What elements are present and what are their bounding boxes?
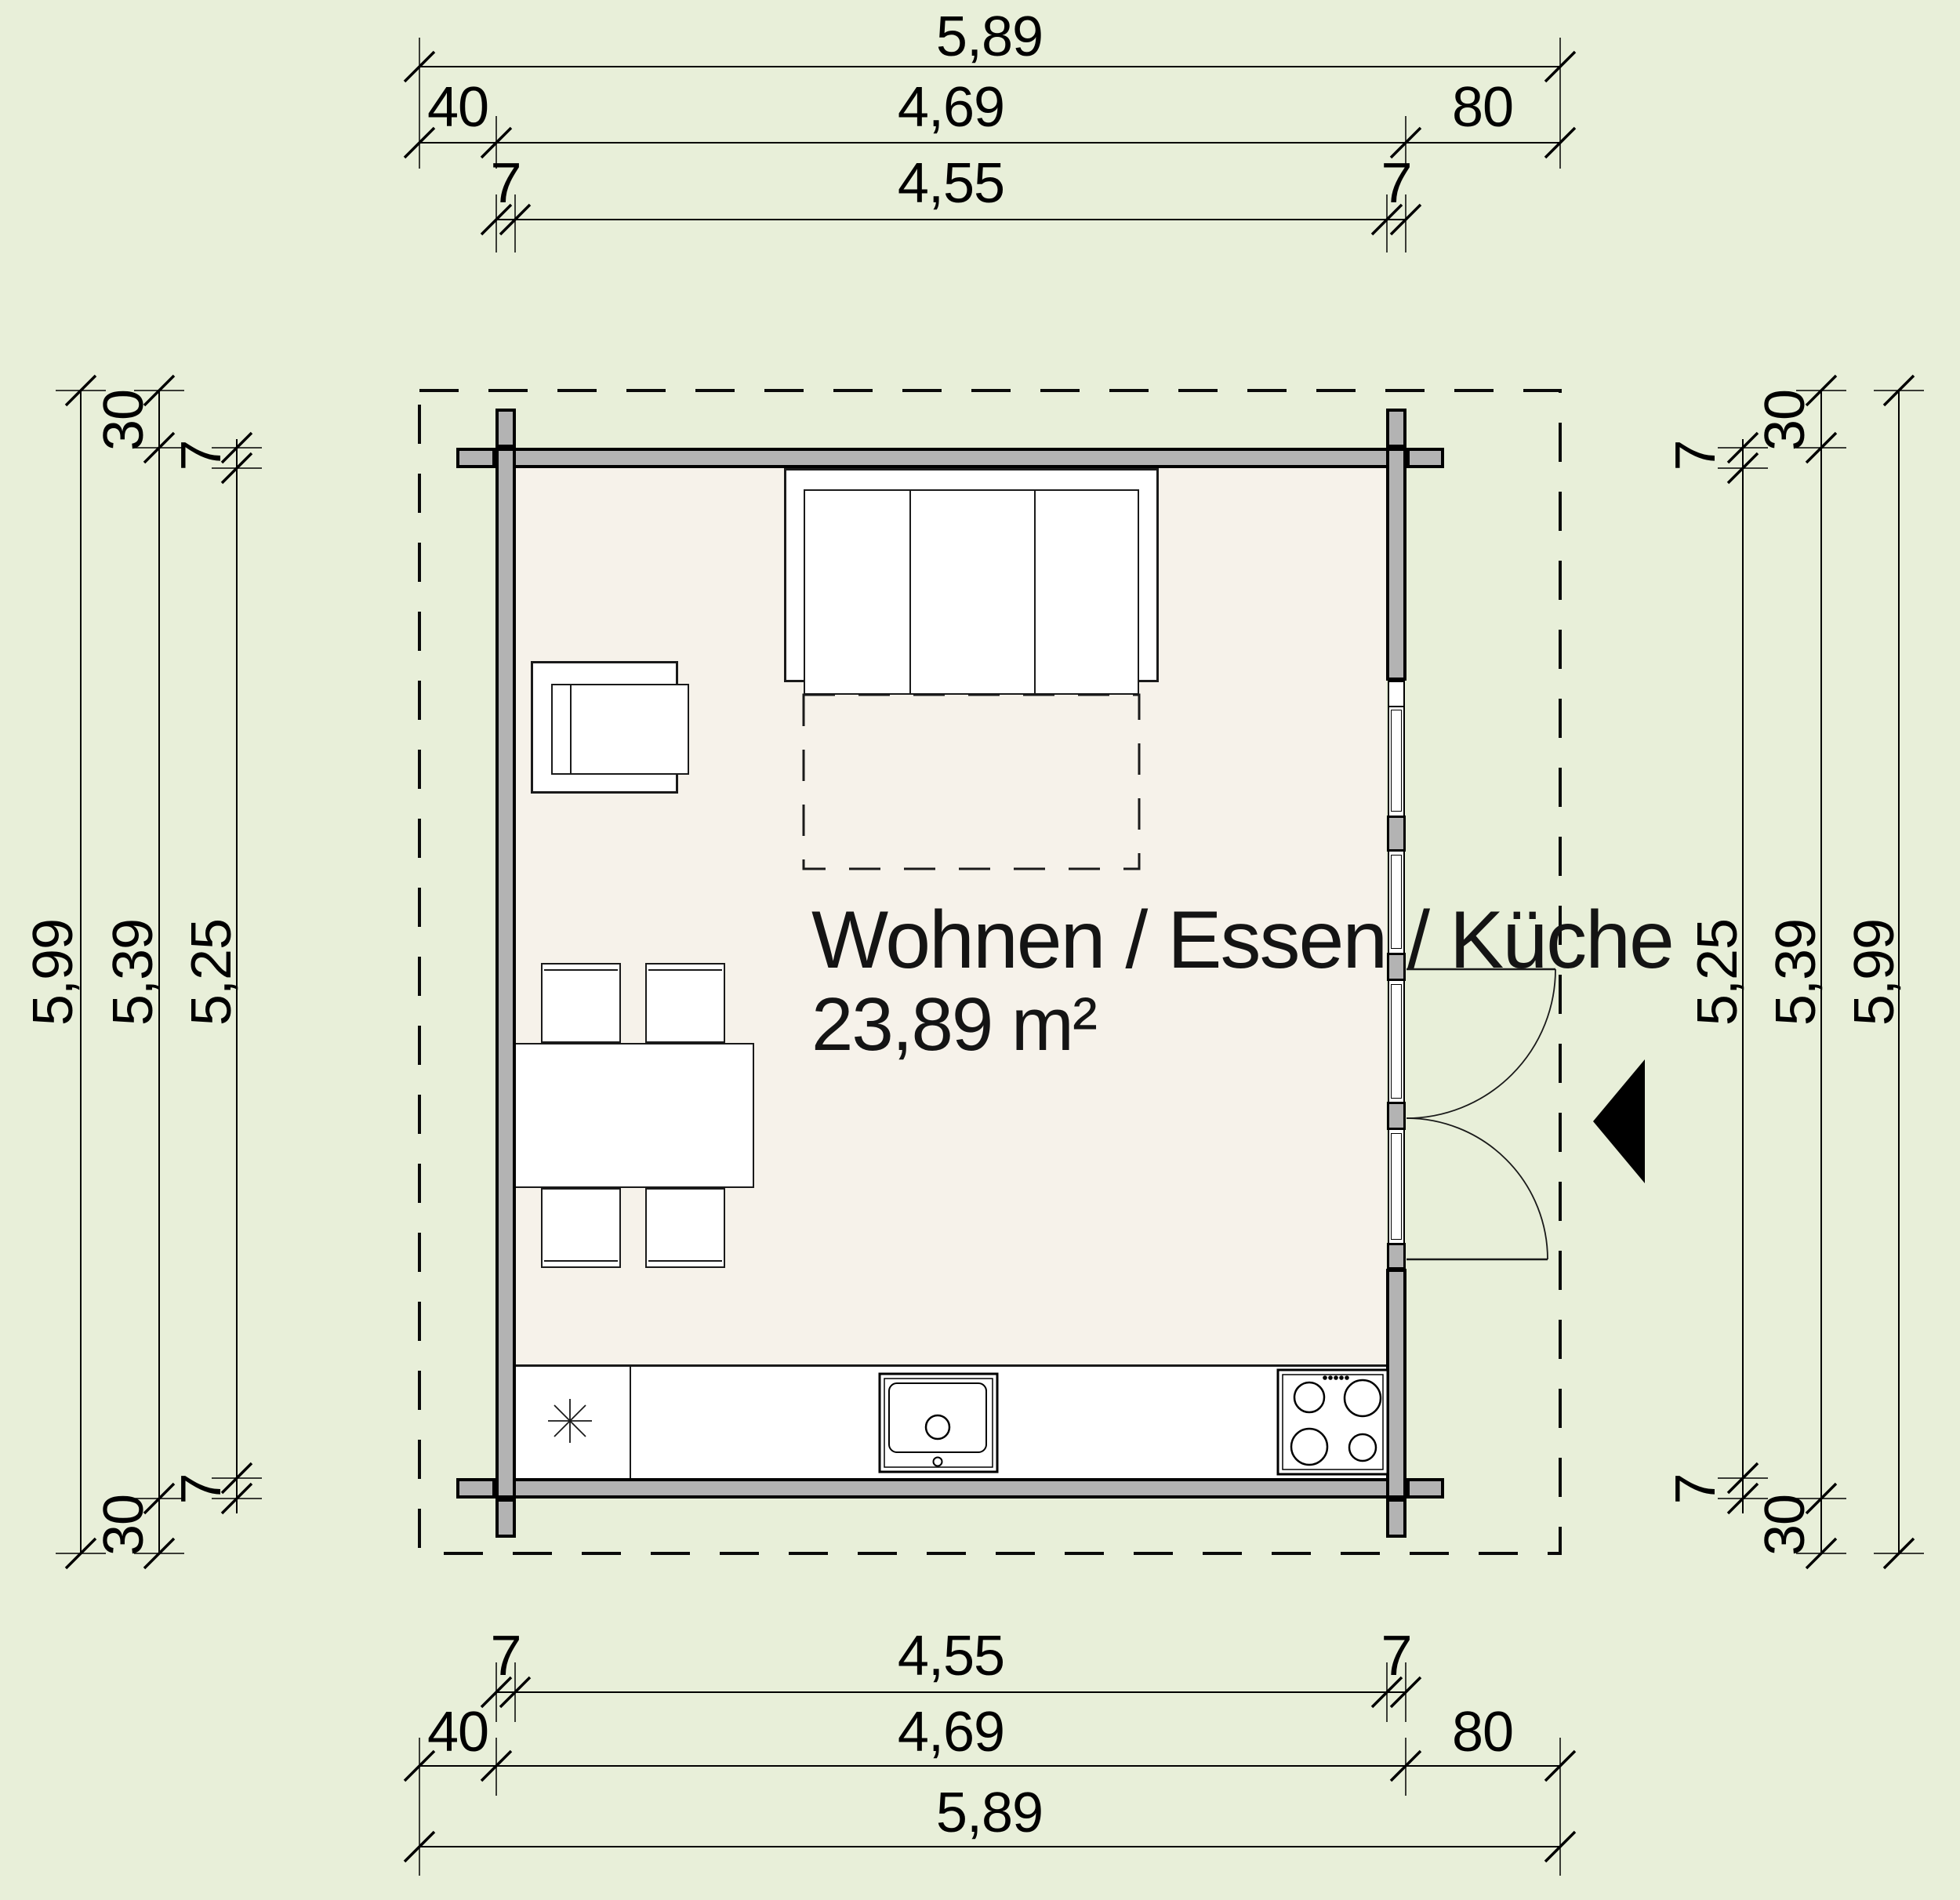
dim-right-overhang-top: 30 [1757, 390, 1813, 451]
chair [645, 963, 725, 1043]
dim-top-inner: 4,55 [898, 155, 1004, 212]
door-hinge-post-bottom [1387, 1243, 1406, 1270]
door-swing-arc-bottom [1406, 1118, 1548, 1259]
chair-backrest-line [544, 969, 618, 971]
wall-top [495, 448, 1406, 468]
dining-table [511, 1043, 754, 1188]
armchair-seat [551, 684, 689, 775]
floor-plan: Wohnen / Essen / Küche 23,89 m² 5,89 40 … [0, 0, 1960, 1900]
dim-bottom-inner: 4,55 [898, 1628, 1004, 1684]
chair-backrest-line [544, 1260, 618, 1262]
log-end [495, 409, 516, 448]
entrance-arrow-icon [1593, 1059, 1645, 1183]
log-end [1406, 1478, 1444, 1499]
sofa-cushion-divider [1034, 491, 1036, 693]
dim-bottom-left-overhang: 40 [427, 1704, 488, 1760]
log-end [1386, 1499, 1406, 1538]
dim-right-outer: 5,39 [1768, 919, 1824, 1026]
log-end [1406, 448, 1444, 468]
window-post [1387, 816, 1406, 852]
dim-right-inner: 5,25 [1690, 919, 1746, 1026]
dim-top-right-overhang: 80 [1452, 79, 1513, 136]
dim-right-wall-bottom: 7 [1668, 1473, 1724, 1504]
dim-top-outer: 4,69 [898, 79, 1004, 136]
dim-left-overhang-top: 30 [96, 390, 152, 451]
room-area-label: 23,89 m² [811, 982, 1096, 1068]
door-panel-bottom [1391, 1133, 1402, 1240]
sofa-cushion-divider [909, 491, 911, 693]
armchair-armrest-line [570, 685, 572, 773]
dim-bottom-outer: 4,69 [898, 1704, 1004, 1760]
dim-left-outer: 5,39 [105, 919, 162, 1026]
dim-left-wall-top: 7 [173, 440, 230, 470]
log-end [456, 1478, 495, 1499]
dim-right-total: 5,99 [1846, 919, 1903, 1026]
log-end [495, 1499, 516, 1538]
wall-bottom [495, 1478, 1406, 1499]
log-end [1386, 409, 1406, 448]
wall-left [495, 448, 516, 1499]
dim-bottom-wall-left: 7 [490, 1628, 521, 1684]
dim-right-wall-top: 7 [1668, 440, 1724, 470]
chair [541, 1188, 621, 1268]
dim-bottom-wall-right: 7 [1381, 1628, 1411, 1684]
dim-top-total: 5,89 [936, 9, 1043, 65]
door-center-post [1387, 1102, 1406, 1130]
kitchen-counter [516, 1364, 1386, 1478]
dim-top-wall-left: 7 [490, 155, 521, 212]
chair-backrest-line [648, 969, 722, 971]
kitchen-counter-divider [630, 1364, 631, 1478]
dim-bottom-right-overhang: 80 [1452, 1704, 1513, 1760]
window-sill-lines [1388, 681, 1405, 707]
log-end [456, 448, 495, 468]
glazing-panel [1391, 710, 1402, 812]
dim-right-overhang-bottom: 30 [1757, 1495, 1813, 1556]
dim-top-left-overhang: 40 [427, 79, 488, 136]
dim-left-total: 5,99 [25, 919, 82, 1026]
dim-left-overhang-bottom: 30 [96, 1495, 152, 1556]
chair-backrest-line [648, 1260, 722, 1262]
dim-top-wall-right: 7 [1381, 155, 1411, 212]
dim-left-inner: 5,25 [183, 919, 240, 1026]
room-name-label: Wohnen / Essen / Küche [811, 894, 1673, 987]
wall-right-upper [1386, 448, 1406, 681]
dim-bottom-total: 5,89 [936, 1785, 1043, 1841]
sofa-seat [804, 489, 1139, 695]
chair [541, 963, 621, 1043]
door-panel-top [1391, 984, 1402, 1099]
door-swing-arc-top [1406, 969, 1555, 1118]
chair [645, 1188, 725, 1268]
wall-right-lower [1386, 1269, 1406, 1499]
dim-left-wall-bottom: 7 [173, 1473, 230, 1504]
